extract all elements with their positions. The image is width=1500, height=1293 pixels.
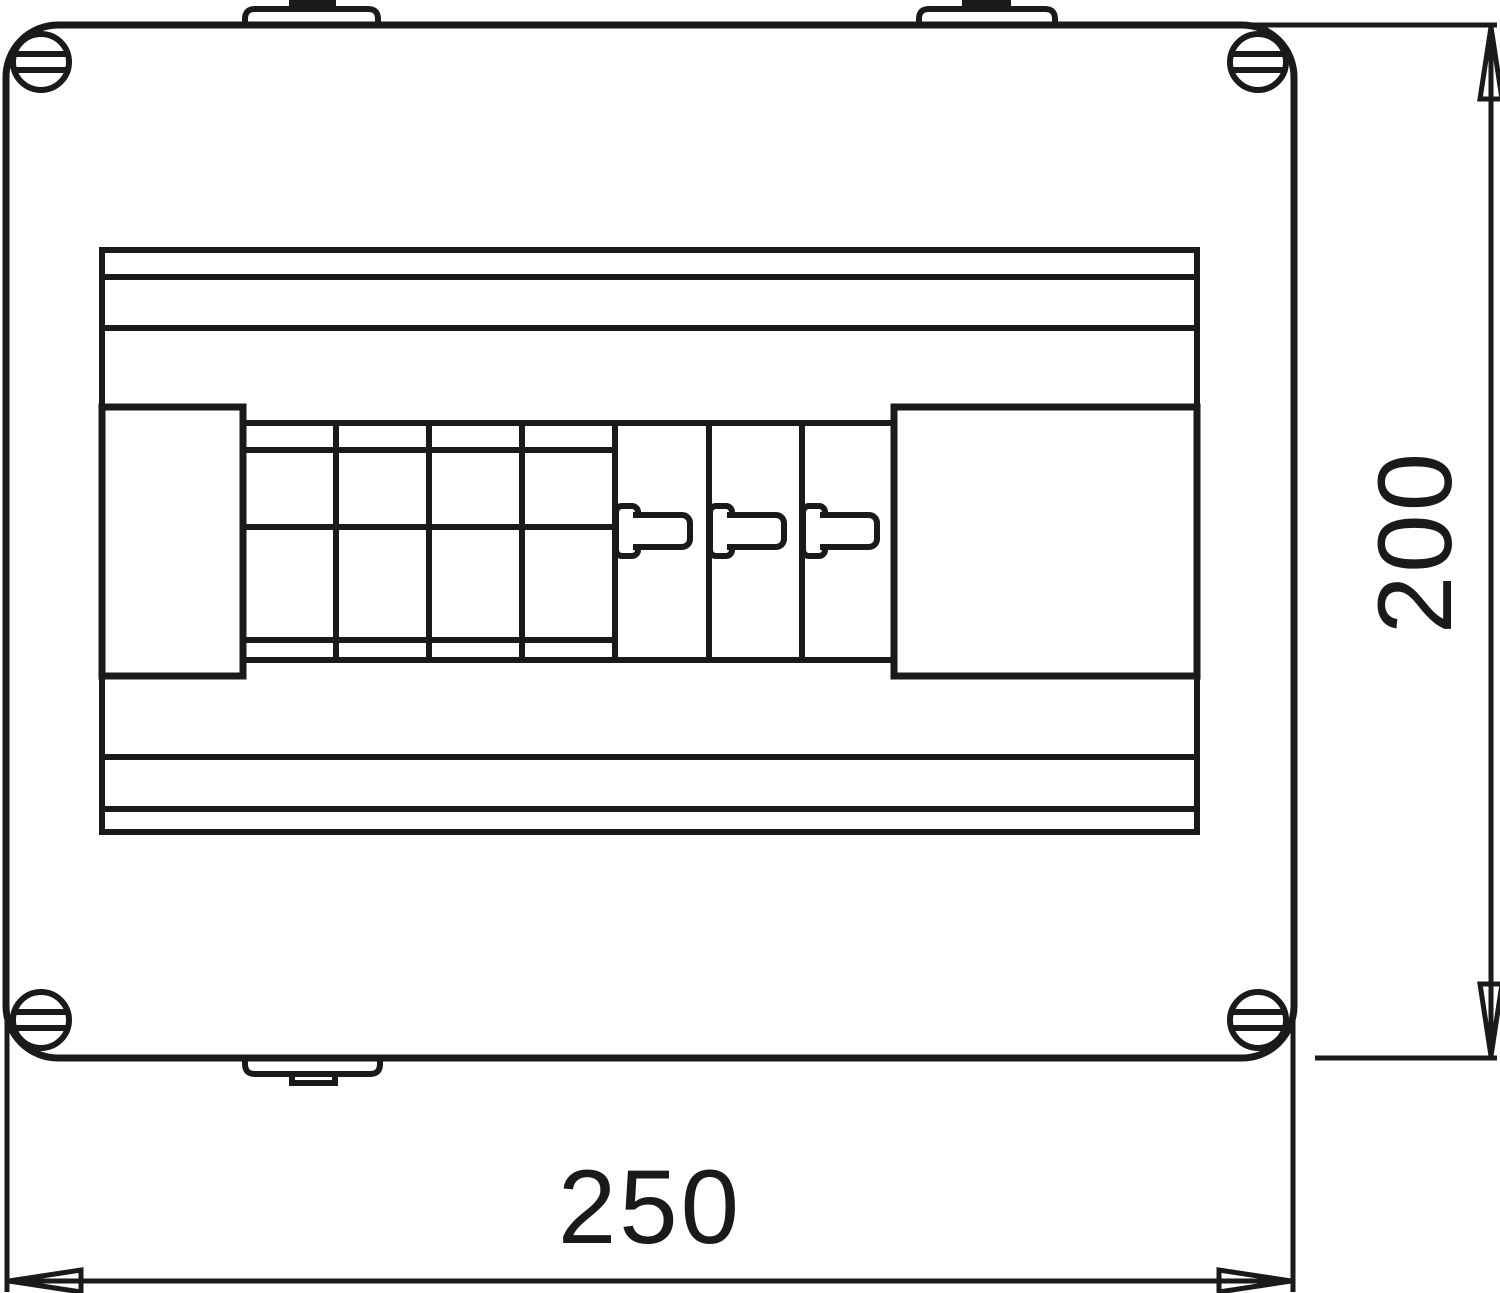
screw-top-left (13, 34, 69, 90)
toggle-switch-3 (803, 506, 877, 556)
blanking-block-right (894, 407, 1197, 676)
screw-head (1230, 34, 1286, 90)
blanking-block-left (102, 407, 243, 676)
screw-bottom-left (13, 992, 69, 1048)
screw-bottom-right (1230, 992, 1286, 1048)
toggle-switch-2 (710, 506, 784, 556)
screw-top-right (1230, 34, 1286, 90)
height-dimension-label: 200 (1357, 450, 1474, 634)
toggle-lever (820, 515, 877, 547)
width-dimension-label: 250 (558, 1149, 742, 1266)
enclosure-dimension-drawing: 250 200 (0, 0, 1500, 1293)
toggle-lever (633, 515, 690, 547)
screw-head (13, 34, 69, 90)
technical-drawing-canvas: 250 200 (0, 0, 1500, 1293)
toggle-lever (727, 515, 784, 547)
breaker-module-group (615, 423, 894, 660)
blank-module-group (243, 423, 615, 660)
toggle-switch-1 (616, 506, 690, 556)
screw-head (1230, 992, 1286, 1048)
screw-head (13, 992, 69, 1048)
